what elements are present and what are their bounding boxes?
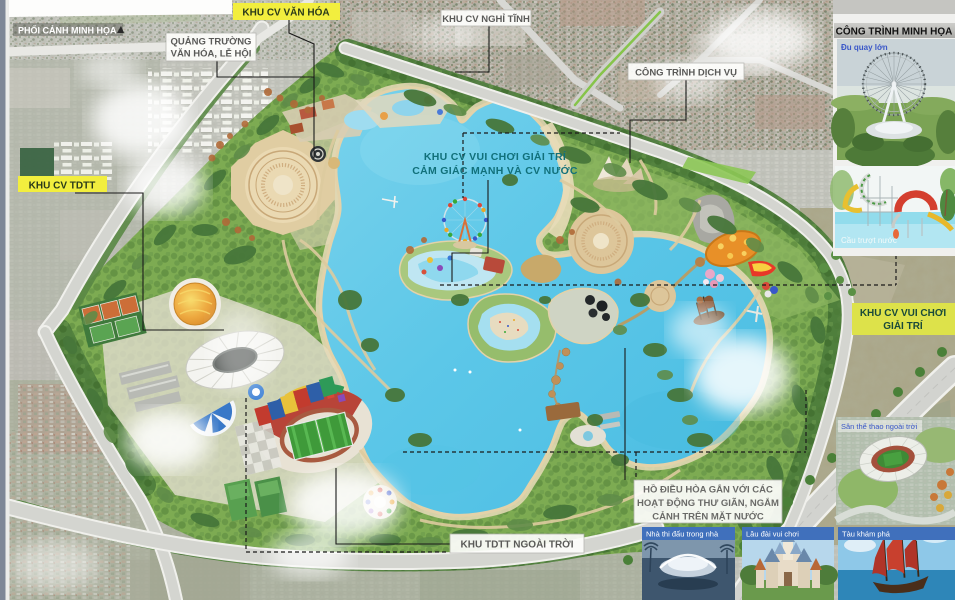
svg-text:HOẠT ĐỘNG THƯ GIÃN, NGẮM: HOẠT ĐỘNG THƯ GIÃN, NGẮM <box>637 497 779 509</box>
svg-text:KHU CV NGHỈ TĨNH: KHU CV NGHỈ TĨNH <box>442 13 530 25</box>
svg-text:KHU TDTT NGOÀI TRỜI: KHU TDTT NGOÀI TRỜI <box>461 538 574 551</box>
svg-text:GIẢI TRÍ: GIẢI TRÍ <box>883 319 923 332</box>
svg-text:PHỐI CẢNH MINH HỌA: PHỐI CẢNH MINH HỌA <box>18 25 117 36</box>
svg-text:CẢNH TRÊN MẶT NƯỚC: CẢNH TRÊN MẶT NƯỚC <box>652 511 764 523</box>
svg-text:Lâu đài vui chơi: Lâu đài vui chơi <box>746 530 799 539</box>
svg-text:Tàu khám phá: Tàu khám phá <box>842 530 891 539</box>
svg-text:CẢM GIÁC MẠNH VÀ CV NƯỚC: CẢM GIÁC MẠNH VÀ CV NƯỚC <box>412 164 578 177</box>
svg-text:Sân thể thao ngoài trời: Sân thể thao ngoài trời <box>841 422 918 431</box>
svg-text:Cầu trượt nước: Cầu trượt nước <box>841 236 897 245</box>
svg-text:KHU CV VUI CHƠI: KHU CV VUI CHƠI <box>860 308 947 319</box>
svg-text:CÔNG TRÌNH MINH HỌA: CÔNG TRÌNH MINH HỌA <box>836 25 953 38</box>
svg-text:CÔNG TRÌNH DỊCH VỤ: CÔNG TRÌNH DỊCH VỤ <box>635 67 737 79</box>
svg-text:Nhà thi đấu trong nhà: Nhà thi đấu trong nhà <box>646 530 719 539</box>
svg-text:HỒ ĐIỀU HÒA GẮN VỚI CÁC: HỒ ĐIỀU HÒA GẮN VỚI CÁC <box>643 484 773 496</box>
svg-text:Đu quay lớn: Đu quay lớn <box>841 43 888 52</box>
svg-text:QUẢNG TRƯỜNG: QUẢNG TRƯỜNG <box>171 36 252 48</box>
svg-text:KHU CV VĂN HÓA: KHU CV VĂN HÓA <box>242 6 329 19</box>
svg-text:VĂN HÓA, LỄ HỘI: VĂN HÓA, LỄ HỘI <box>171 48 252 60</box>
svg-text:KHU CV VUI CHƠI GIẢI TRÍ: KHU CV VUI CHƠI GIẢI TRÍ <box>424 150 567 163</box>
svg-text:KHU CV TDTT: KHU CV TDTT <box>29 181 96 192</box>
